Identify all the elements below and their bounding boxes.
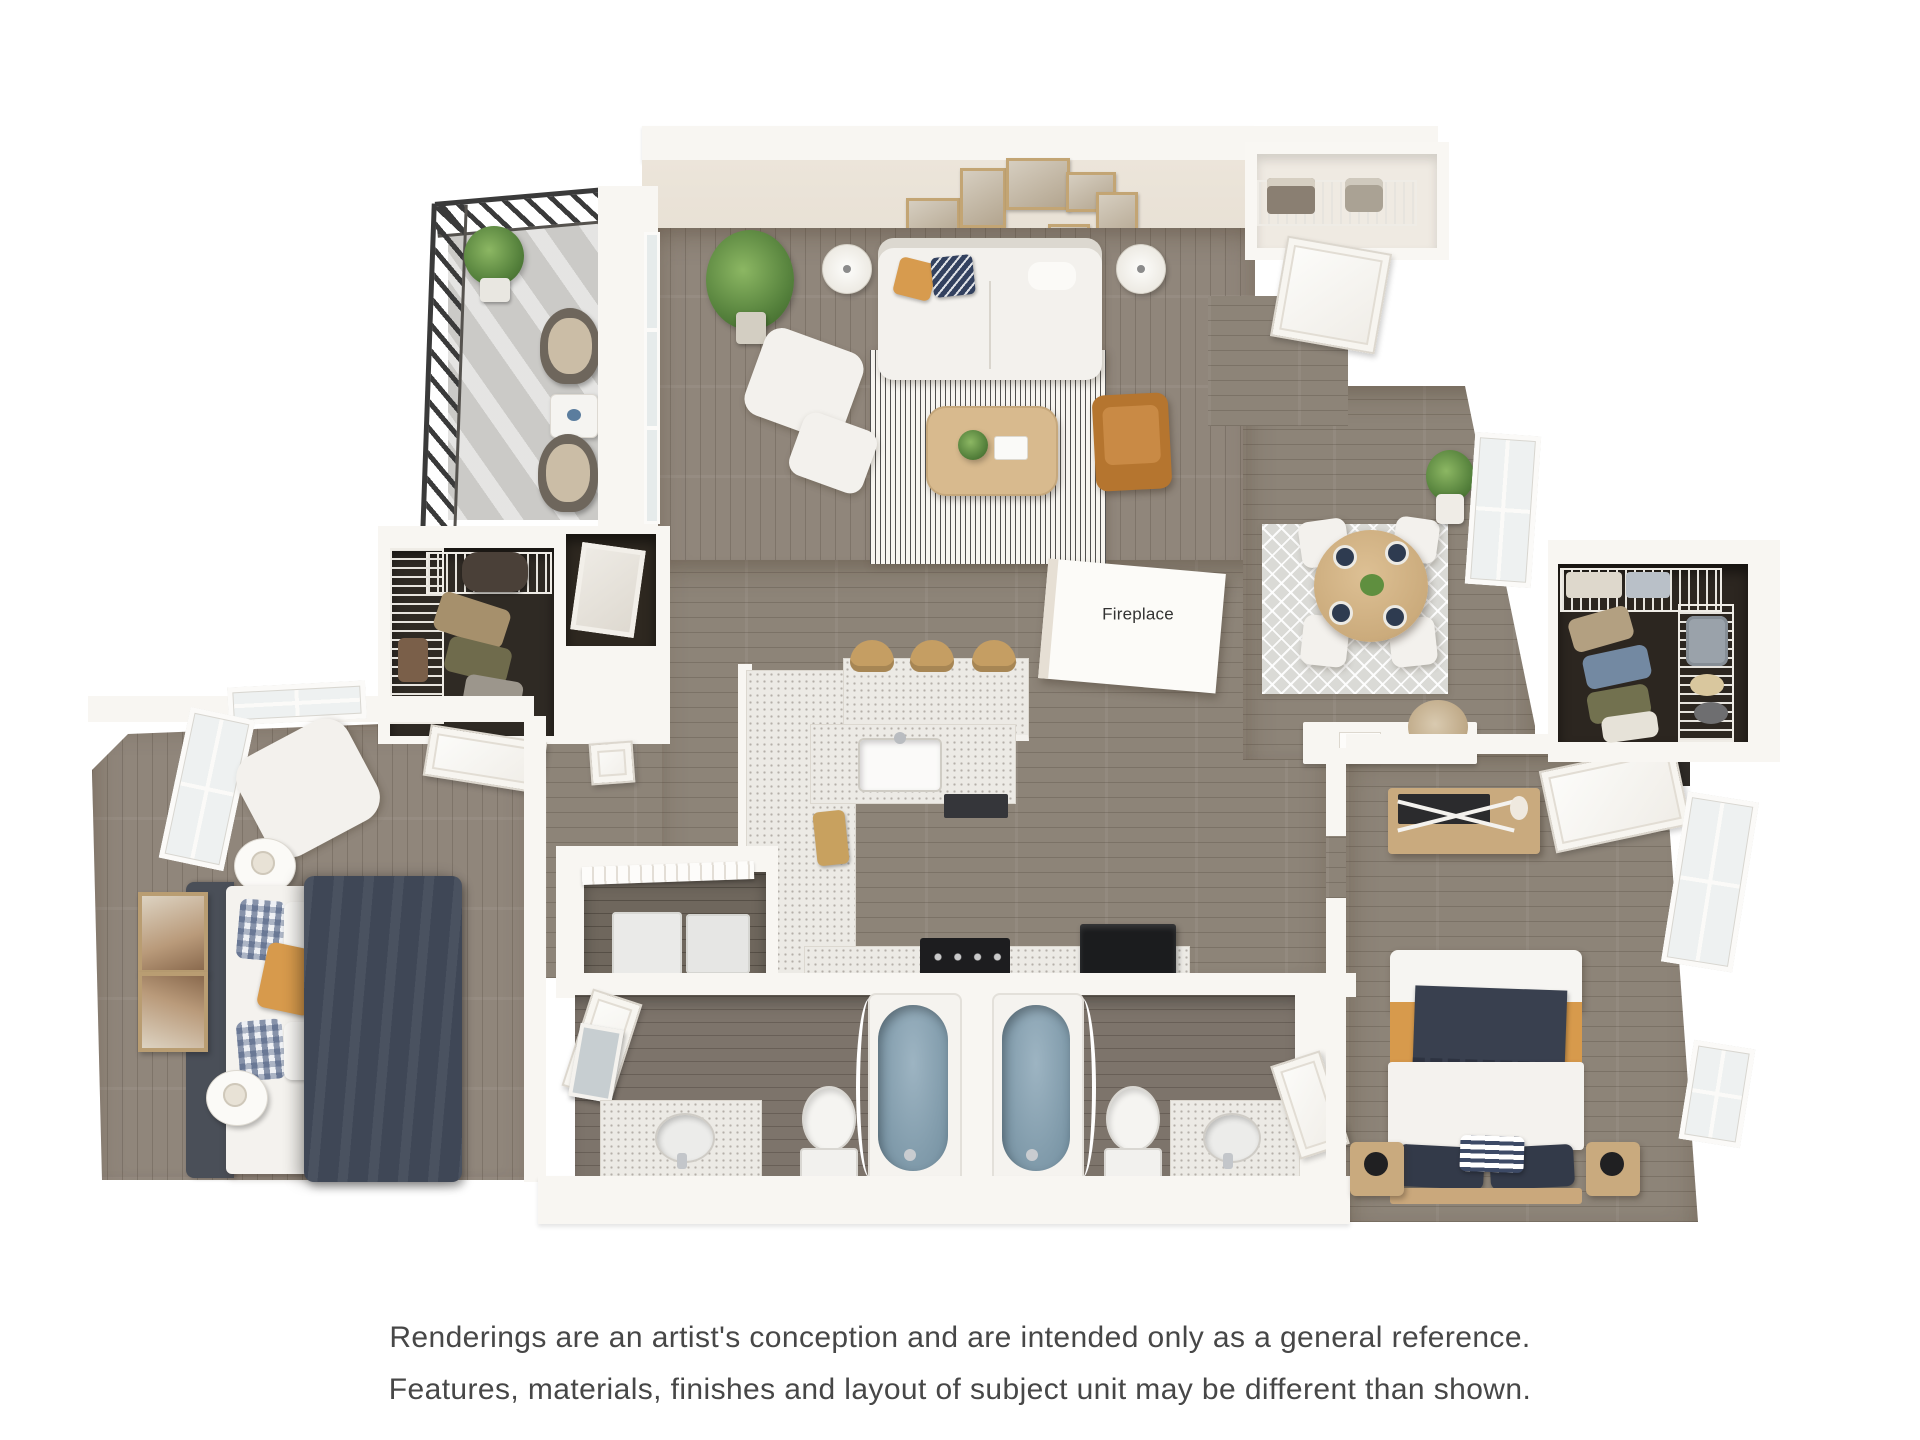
fireplace-label: Fireplace [1054, 604, 1222, 624]
dining-table [1314, 530, 1428, 642]
lamp-finial [1137, 265, 1145, 273]
plant-pot [736, 312, 766, 344]
vase [1510, 796, 1528, 820]
bathroom-vanity [1170, 1100, 1300, 1180]
tub-faucet [1026, 1149, 1038, 1161]
suitcase [1686, 616, 1728, 666]
patio-chair [538, 434, 598, 512]
place-setting [1388, 544, 1406, 562]
kitchen-sink [858, 738, 942, 792]
sofa [878, 238, 1102, 380]
nightstand [206, 1070, 268, 1126]
table-lamp [251, 851, 275, 875]
sliding-glass-door [644, 232, 660, 524]
faucet [894, 732, 906, 744]
closet-basket [1267, 178, 1315, 214]
chair-cushion [546, 444, 590, 502]
toilet [798, 1086, 856, 1178]
dryer [686, 914, 750, 974]
closet-basket [1345, 178, 1383, 212]
sofa-pillow-white [1028, 262, 1076, 290]
tub-faucet [904, 1149, 916, 1161]
bathtub [878, 1005, 948, 1171]
throw-navy [1413, 985, 1568, 1068]
place-setting [1332, 604, 1350, 622]
bed-frame-foot [1390, 1188, 1582, 1204]
floor-lamp [1116, 244, 1166, 294]
floor-plan-rendering: Fireplace [0, 0, 1920, 1440]
hat [1694, 702, 1728, 724]
disclaimer-line-1: Renderings are an artist's conception an… [0, 1312, 1920, 1364]
shower-rod [856, 998, 884, 1178]
wall-bedroom2-left [1326, 748, 1346, 836]
faucet [1223, 1153, 1233, 1169]
folded-towels [1626, 572, 1670, 598]
picture-frame [960, 168, 1006, 228]
disclaimer-line-2: Features, materials, finishes and layout… [0, 1364, 1920, 1416]
lamp-finial [843, 265, 851, 273]
window-dining [1465, 432, 1541, 588]
washer [612, 912, 682, 976]
place-setting [1336, 548, 1354, 566]
coffee-table [926, 406, 1058, 496]
patio-side-table [550, 394, 598, 438]
disclaimer: Renderings are an artist's conception an… [0, 1312, 1920, 1416]
dishwasher [944, 794, 1008, 818]
picture-frame [1006, 158, 1070, 210]
wall-bedroom2-left [1326, 898, 1346, 1222]
table-lamp-black [1364, 1152, 1388, 1176]
interior-door [589, 741, 636, 786]
folded-towels [1566, 572, 1622, 598]
leather-armchair [1092, 392, 1173, 492]
toilet [1102, 1086, 1160, 1178]
chair-cushion [548, 318, 592, 374]
bathroom-vanity [600, 1100, 762, 1180]
book [994, 436, 1028, 460]
bedroom2-doorway [1326, 836, 1346, 898]
stove-cooktop [920, 938, 1010, 976]
table-lamp-black [1600, 1152, 1624, 1176]
wall-art [138, 972, 208, 1052]
wall-top-cap [642, 126, 1254, 162]
centerpiece [1360, 574, 1384, 596]
duffel-bag [462, 552, 528, 592]
wall-bottom [538, 1176, 1350, 1224]
sofa-pillow-navy [930, 254, 976, 298]
hand-bag [398, 638, 428, 682]
patio-chair [540, 308, 600, 384]
table-decor [567, 409, 581, 421]
pillow-striped [1459, 1135, 1524, 1173]
fireplace-box: Fireplace [1038, 558, 1226, 693]
plant-pot [480, 278, 510, 302]
floor-lamp [822, 244, 872, 294]
entry-closet [1245, 142, 1449, 260]
nightstand [1586, 1142, 1640, 1196]
duvet-navy [304, 876, 462, 1182]
chair-cushion [1102, 405, 1161, 466]
front-door [1270, 236, 1392, 355]
balcony-plant [464, 226, 524, 286]
dresser [1388, 788, 1540, 854]
wall-bedroom1-right [524, 716, 546, 1182]
wall-art [138, 892, 208, 974]
walk-in-closet-2 [1558, 564, 1748, 742]
coat-closet [566, 534, 656, 646]
toilet-bowl [1106, 1086, 1160, 1152]
bed-2 [1386, 950, 1586, 1208]
bathtub [1002, 1005, 1070, 1171]
shower-rod [1068, 998, 1096, 1178]
bed-1 [186, 882, 454, 1178]
closet-door [570, 542, 646, 638]
plant-pot [1436, 494, 1464, 524]
place-setting [1386, 608, 1404, 626]
hat [1690, 674, 1724, 696]
table-plant [958, 430, 988, 460]
table-lamp [223, 1083, 247, 1107]
toilet-bowl [802, 1086, 856, 1152]
nightstand [1350, 1142, 1404, 1196]
cutting-board [812, 809, 849, 866]
refrigerator [1080, 924, 1176, 978]
window-bedroom2-low [1679, 1040, 1756, 1148]
faucet [677, 1153, 687, 1169]
